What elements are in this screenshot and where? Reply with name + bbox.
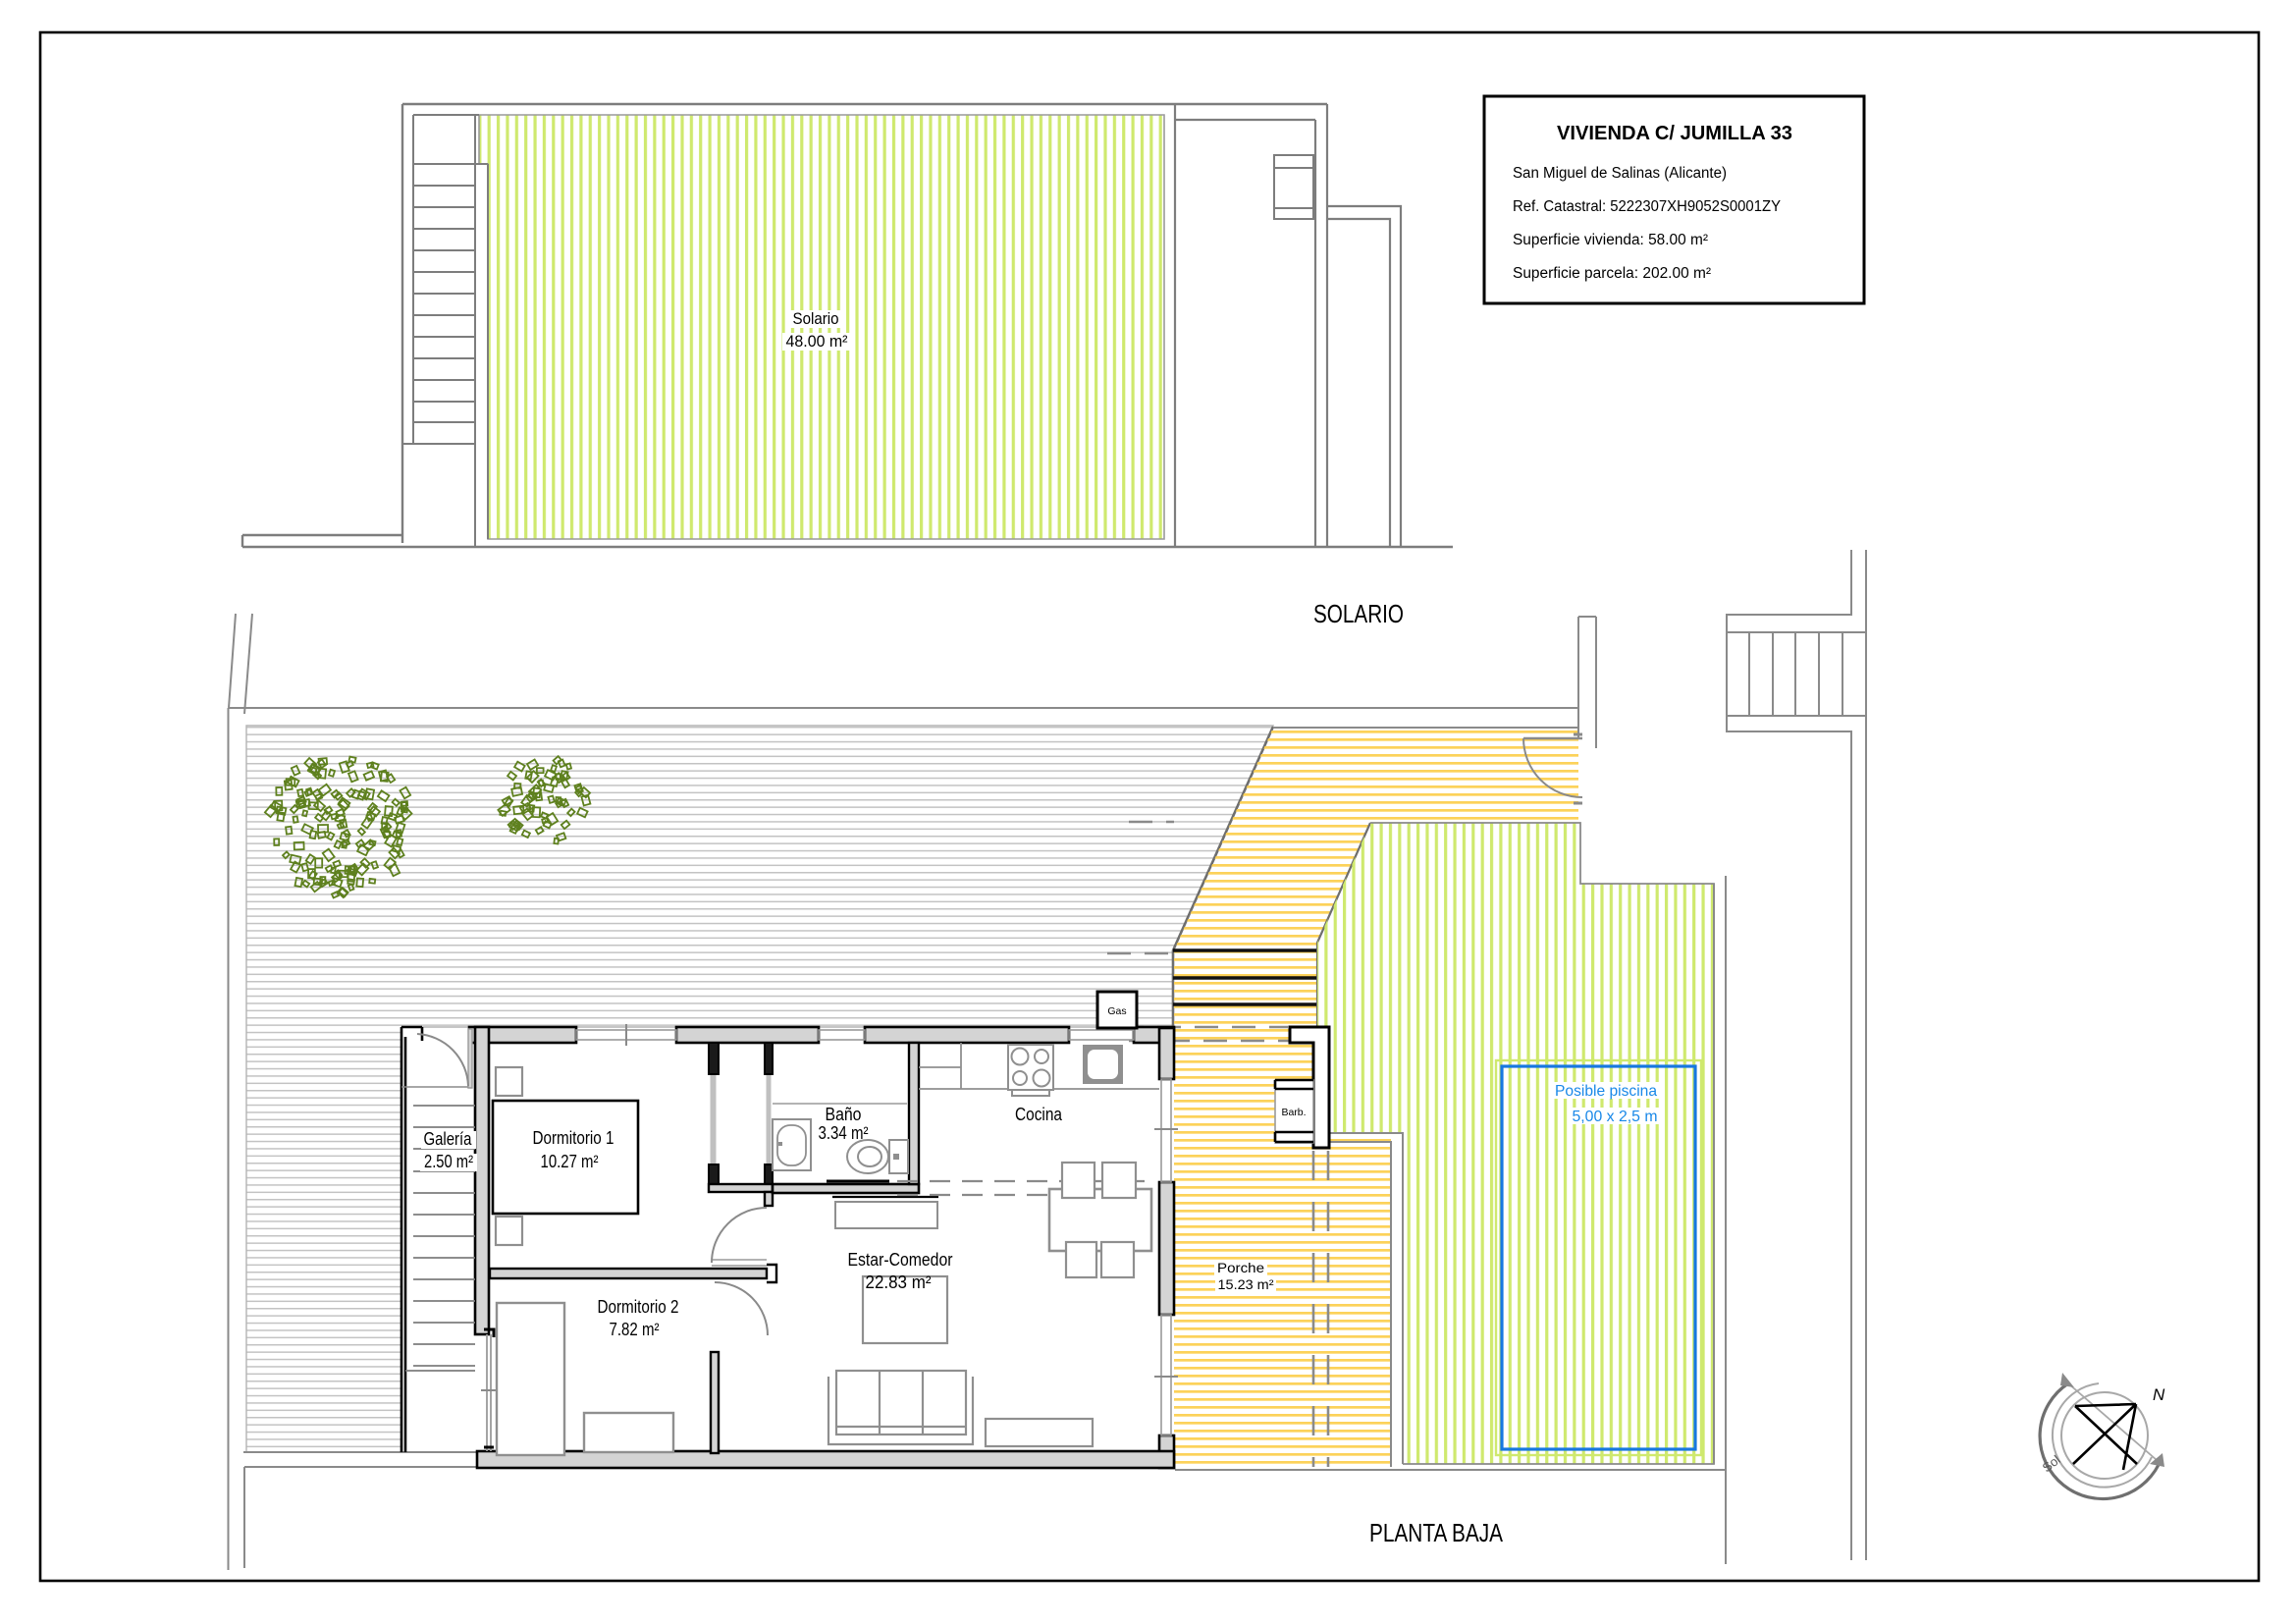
svg-text:PLANTA BAJA: PLANTA BAJA	[1369, 1518, 1504, 1547]
svg-text:Barb.: Barb.	[1281, 1107, 1306, 1118]
svg-text:Posible piscina: Posible piscina	[1555, 1083, 1657, 1100]
svg-text:10.27 m²: 10.27 m²	[541, 1152, 599, 1171]
svg-text:48.00 m²: 48.00 m²	[786, 332, 848, 351]
svg-text:22.83 m²: 22.83 m²	[866, 1272, 932, 1292]
svg-text:15.23 m²: 15.23 m²	[1218, 1276, 1274, 1292]
svg-text:5,00 x 2,5 m: 5,00 x 2,5 m	[1573, 1109, 1658, 1125]
svg-text:2.50 m²: 2.50 m²	[424, 1152, 473, 1171]
svg-text:Estar-Comedor: Estar-Comedor	[848, 1250, 953, 1270]
svg-text:Superficie vivienda: 58.00 m²: Superficie vivienda: 58.00 m²	[1513, 232, 1708, 248]
svg-text:7.82 m²: 7.82 m²	[610, 1320, 660, 1339]
svg-text:Porche: Porche	[1217, 1260, 1264, 1275]
svg-text:Baño: Baño	[826, 1105, 862, 1124]
svg-text:Galería: Galería	[424, 1129, 473, 1149]
svg-text:Ref. Catastral: 5222307XH9052S: Ref. Catastral: 5222307XH9052S0001ZY	[1513, 198, 1781, 215]
svg-text:Cocina: Cocina	[1015, 1105, 1063, 1124]
svg-text:Gas: Gas	[1107, 1005, 1126, 1017]
svg-text:VIVIENDA C/ JUMILLA 33: VIVIENDA C/ JUMILLA 33	[1557, 122, 1792, 144]
svg-text:San Miguel de Salinas (Alicant: San Miguel de Salinas (Alicante)	[1513, 165, 1727, 182]
svg-text:Dormitorio 1: Dormitorio 1	[533, 1128, 614, 1148]
svg-text:SOLARIO: SOLARIO	[1313, 599, 1404, 628]
svg-text:N: N	[2153, 1385, 2165, 1404]
svg-text:Dormitorio 2: Dormitorio 2	[598, 1297, 679, 1317]
svg-text:Solario: Solario	[793, 309, 839, 328]
svg-text:Superficie parcela: 202.00 m²: Superficie parcela: 202.00 m²	[1513, 265, 1711, 282]
svg-text:3.34 m²: 3.34 m²	[819, 1123, 869, 1143]
